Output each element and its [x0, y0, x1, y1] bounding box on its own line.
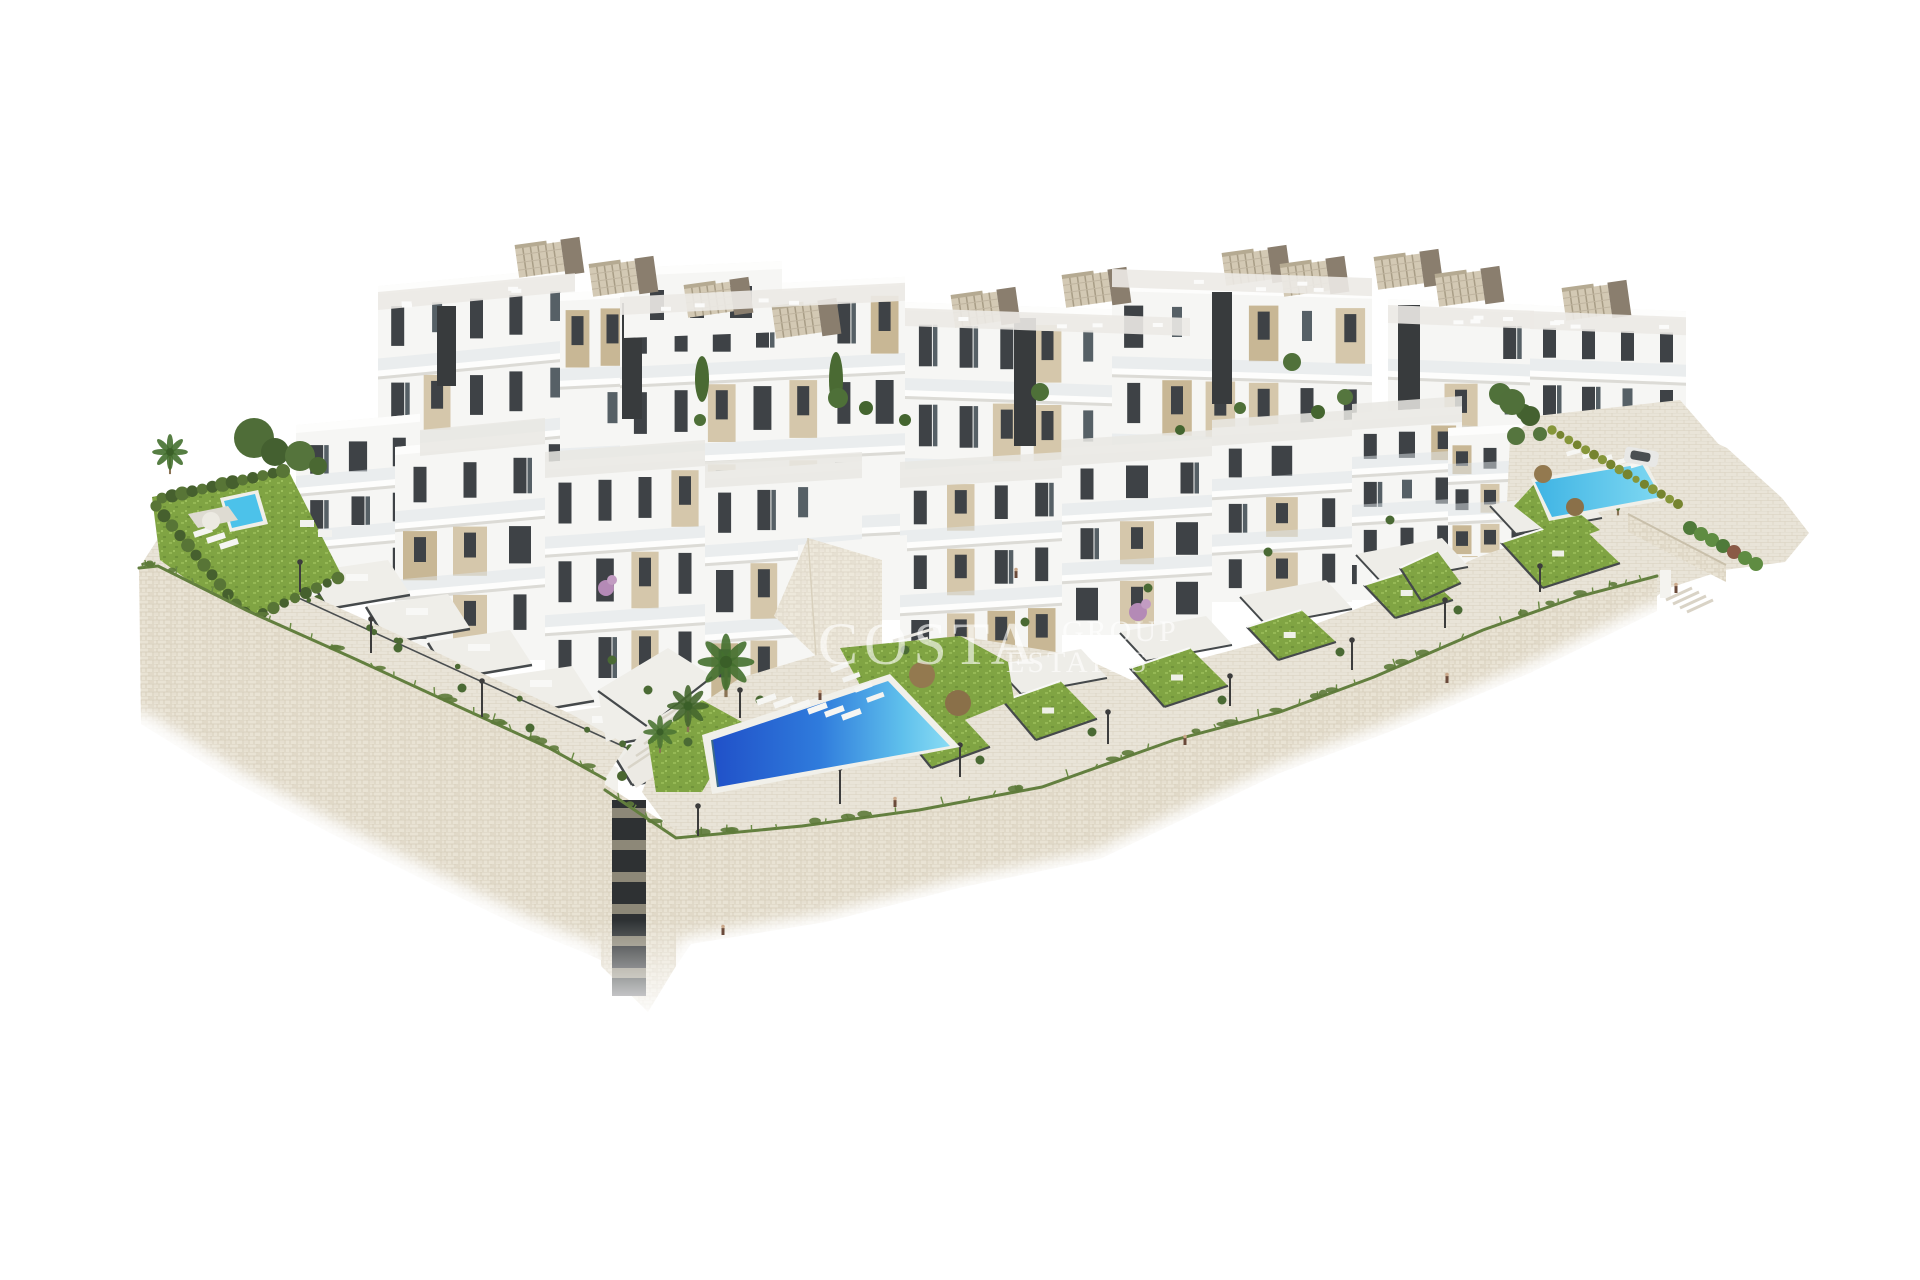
svg-text:GROUP: GROUP — [1062, 615, 1179, 648]
svg-text:ESTATES: ESTATES — [1006, 646, 1150, 679]
